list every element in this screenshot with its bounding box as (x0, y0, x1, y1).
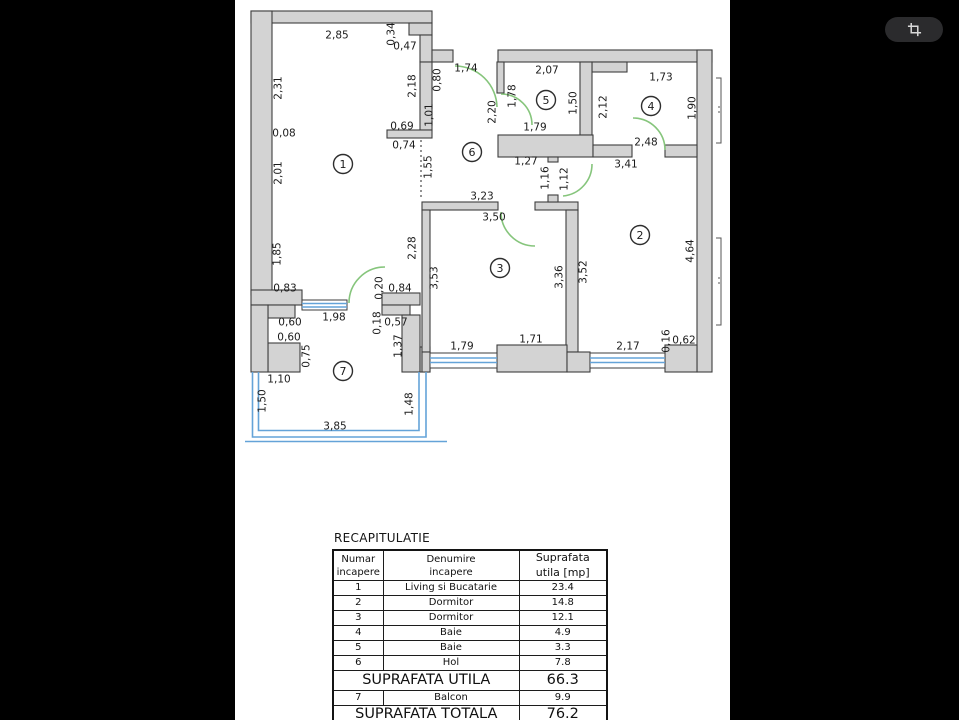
dimension-label: 2,17 (616, 341, 639, 353)
recap-title: RECAPITULATIE (334, 531, 608, 545)
table-row: SUPRAFATA UTILA66.3 (333, 671, 607, 691)
table-cell: SUPRAFATA TOTALA (333, 706, 519, 720)
window-symbols (302, 300, 665, 368)
table-cell: Balcon (383, 691, 519, 706)
dimension-label: 2,12 (598, 95, 610, 118)
dimension-label: 2,20 (487, 100, 499, 123)
dimension-label: 0,60 (277, 332, 300, 344)
table-cell: 4 (333, 626, 383, 641)
table-cell: Hol (383, 656, 519, 671)
dimension-label: 1,90 (687, 96, 699, 119)
dimension-label: 1,50 (257, 389, 269, 412)
dimension-label: 3,41 (614, 159, 637, 171)
table-row: SUPRAFATA TOTALA76.2 (333, 706, 607, 720)
dimension-label: 0,80 (432, 68, 444, 91)
dimension-label: 1,98 (322, 312, 345, 324)
room-number: 3 (491, 259, 510, 278)
svg-text:4: 4 (648, 100, 655, 113)
dimension-label: 1,55 (423, 155, 435, 178)
dimension-label: 3,53 (429, 266, 441, 289)
dimension-label: 1,79 (523, 122, 546, 134)
dimension-label: 1,16 (540, 166, 552, 190)
table-cell: Baie (383, 641, 519, 656)
dimension-label: 0,83 (273, 283, 296, 295)
dimension-label: 1,48 (404, 392, 416, 415)
room-number: 6 (463, 143, 482, 162)
dimension-label: 2,48 (634, 137, 657, 149)
table-cell: 7 (333, 691, 383, 706)
dimension-label: 1,71 (519, 334, 542, 346)
col-header-numar: Numar incapere (333, 550, 383, 581)
dimension-label: 1,10 (267, 374, 290, 386)
bedroom3-door-arc (501, 212, 535, 246)
table-cell: 3 (333, 611, 383, 626)
table-cell: 2 (333, 596, 383, 611)
dimension-label: 3,50 (482, 212, 505, 224)
image-viewer: 2,850,340,472,310,082,011,850,832,180,80… (0, 0, 959, 720)
table-row: 6Hol7.8 (333, 656, 607, 671)
table-row: 7Balcon9.9 (333, 691, 607, 706)
dimension-label: 1,37 (393, 334, 405, 357)
svg-text:2: 2 (637, 229, 644, 242)
dimension-label: 1,50 (568, 91, 580, 114)
dimension-label: 3,52 (578, 260, 590, 283)
dimension-label: 2,18 (407, 74, 419, 97)
room-number: 7 (334, 362, 353, 381)
table-row: 3Dormitor12.1 (333, 611, 607, 626)
table-cell: 6 (333, 656, 383, 671)
dimension-label: 0,75 (301, 344, 313, 367)
table-cell: Baie (383, 626, 519, 641)
table-cell: 76.2 (519, 706, 607, 720)
dimension-label: 1,79 (450, 341, 473, 353)
dimension-label: 0,16 (661, 329, 673, 353)
dimension-label: 2,31 (273, 76, 285, 99)
dimension-label: 2,28 (407, 236, 419, 259)
dimension-label: 1,01 (424, 103, 436, 126)
table-cell: 7.8 (519, 656, 607, 671)
dimension-label: 1,85 (272, 242, 284, 265)
dimension-label: 0,69 (390, 121, 413, 133)
table-cell: 14.8 (519, 596, 607, 611)
room-number: 5 (537, 91, 556, 110)
svg-text:3: 3 (497, 262, 504, 275)
dimension-label: 2,07 (535, 65, 558, 77)
room-number: 1 (334, 155, 353, 174)
table-cell: 5 (333, 641, 383, 656)
dimension-label: 1,74 (454, 63, 478, 75)
svg-text:1: 1 (340, 158, 347, 171)
table-cell: Living si Bucatarie (383, 581, 519, 596)
dimension-label: 3,23 (470, 191, 493, 203)
table-row: 1Living si Bucatarie23.4 (333, 581, 607, 596)
table-cell: 9.9 (519, 691, 607, 706)
table-cell: Dormitor (383, 596, 519, 611)
dimension-label: 0,74 (392, 140, 416, 152)
table-row: 5Baie3.3 (333, 641, 607, 656)
recap-table: Numar incapere Denumire incapere Suprafa… (332, 549, 608, 720)
dimension-label: 1,78 (507, 84, 519, 107)
svg-text:5: 5 (543, 94, 550, 107)
dimension-label: 0,18 (372, 311, 384, 334)
table-cell: 4.9 (519, 626, 607, 641)
right-wall-brackets (716, 78, 721, 325)
svg-text:6: 6 (469, 146, 476, 159)
table-cell: 3.3 (519, 641, 607, 656)
dimension-label: 0,60 (278, 317, 301, 329)
recap-section: RECAPITULATIE Numar incapere Denumire in… (332, 531, 608, 720)
col-header-suprafata: Suprafata utila [mp] (519, 550, 607, 581)
table-cell: 66.3 (519, 671, 607, 691)
dimension-label: 1,73 (649, 72, 672, 84)
dimension-label: 3,36 (554, 265, 566, 289)
table-cell: SUPRAFATA UTILA (333, 671, 519, 691)
dimension-label: 0,57 (384, 317, 407, 329)
dimension-label: 1,12 (559, 167, 571, 190)
room-number: 2 (631, 226, 650, 245)
dimension-label: 0,08 (272, 128, 295, 140)
dimension-label: 3,85 (323, 421, 346, 433)
table-cell: 12.1 (519, 611, 607, 626)
crop-icon (907, 22, 922, 37)
svg-text:7: 7 (340, 365, 347, 378)
dimension-label: 2,01 (273, 161, 285, 184)
dimension-label: 0,47 (393, 41, 416, 53)
recap-header-row: Numar incapere Denumire incapere Suprafa… (333, 550, 607, 581)
col-header-denumire: Denumire incapere (383, 550, 519, 581)
crop-button[interactable] (885, 17, 943, 42)
dimension-label: 4,64 (685, 239, 697, 263)
dimension-label: 0,20 (374, 276, 386, 299)
table-cell: 1 (333, 581, 383, 596)
room-number: 4 (642, 97, 661, 116)
dimension-label: 0,84 (388, 283, 412, 295)
table-row: 4Baie4.9 (333, 626, 607, 641)
table-cell: Dormitor (383, 611, 519, 626)
dimension-label: 1,27 (514, 156, 537, 168)
dimension-label: 0,62 (672, 335, 695, 347)
dimension-label: 2,85 (325, 30, 348, 42)
table-row: 2Dormitor14.8 (333, 596, 607, 611)
table-cell: 23.4 (519, 581, 607, 596)
